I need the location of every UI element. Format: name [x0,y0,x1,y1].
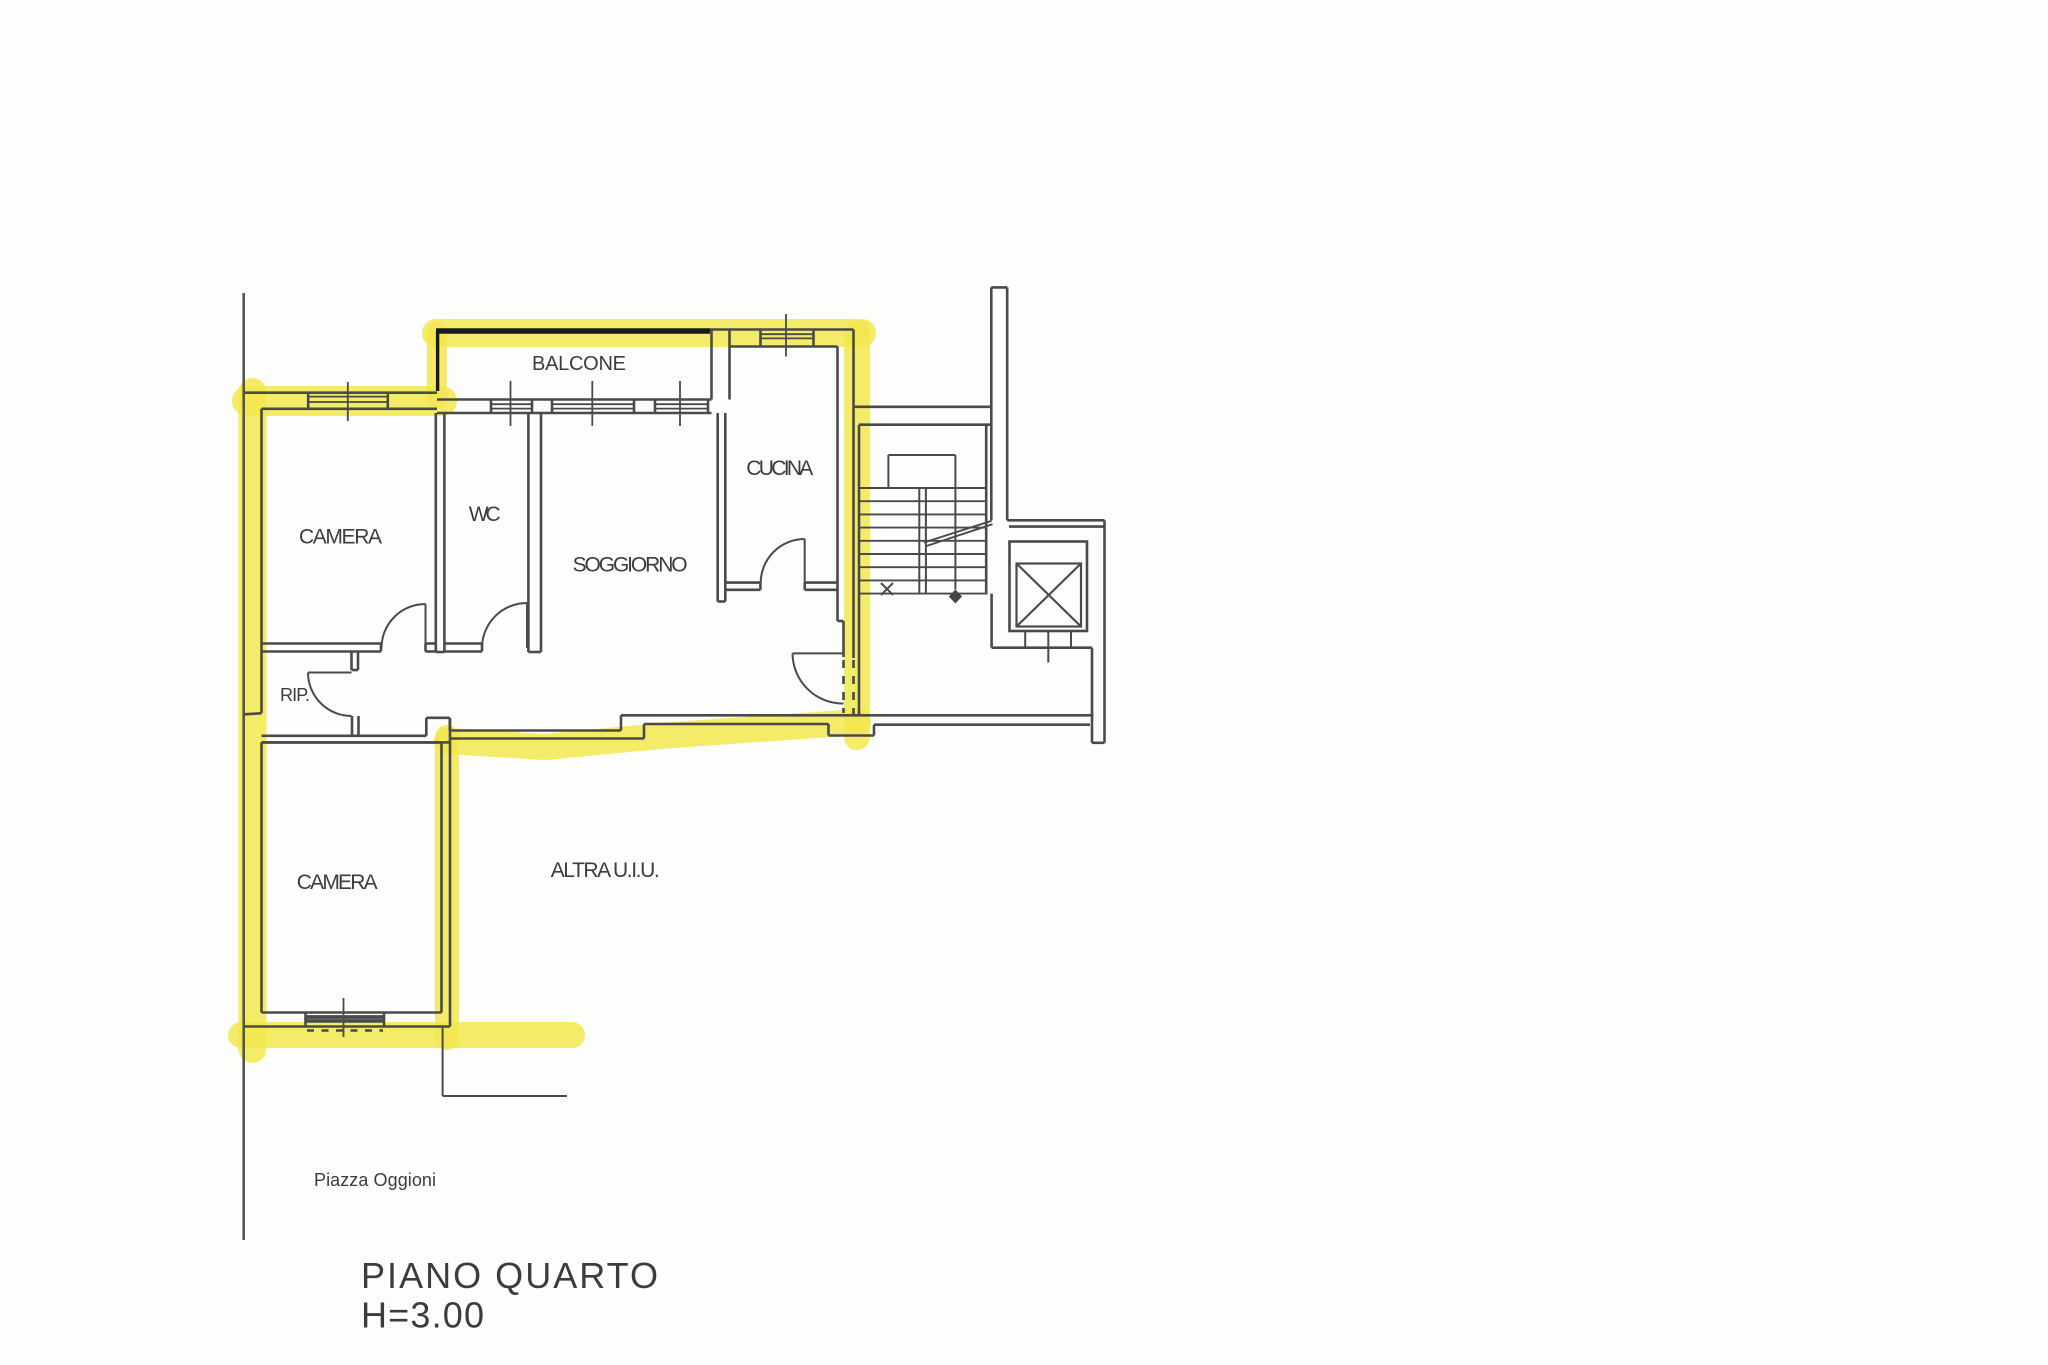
svg-text:CUCINA: CUCINA [746,457,813,480]
svg-text:ALTRA U.I.U.: ALTRA U.I.U. [551,859,660,882]
svg-text:CAMERA: CAMERA [299,526,382,549]
svg-text:CAMERA: CAMERA [297,871,378,894]
svg-text:RIP.: RIP. [280,685,310,705]
svg-text:Piazza Oggioni: Piazza Oggioni [314,1170,436,1190]
svg-text:WC: WC [469,503,501,526]
svg-text:PIANO QUARTO: PIANO QUARTO [361,1255,658,1296]
svg-text:BALCONE: BALCONE [532,353,626,375]
svg-text:SOGGIORNO: SOGGIORNO [573,554,688,577]
svg-text:H=3.00: H=3.00 [361,1295,484,1336]
